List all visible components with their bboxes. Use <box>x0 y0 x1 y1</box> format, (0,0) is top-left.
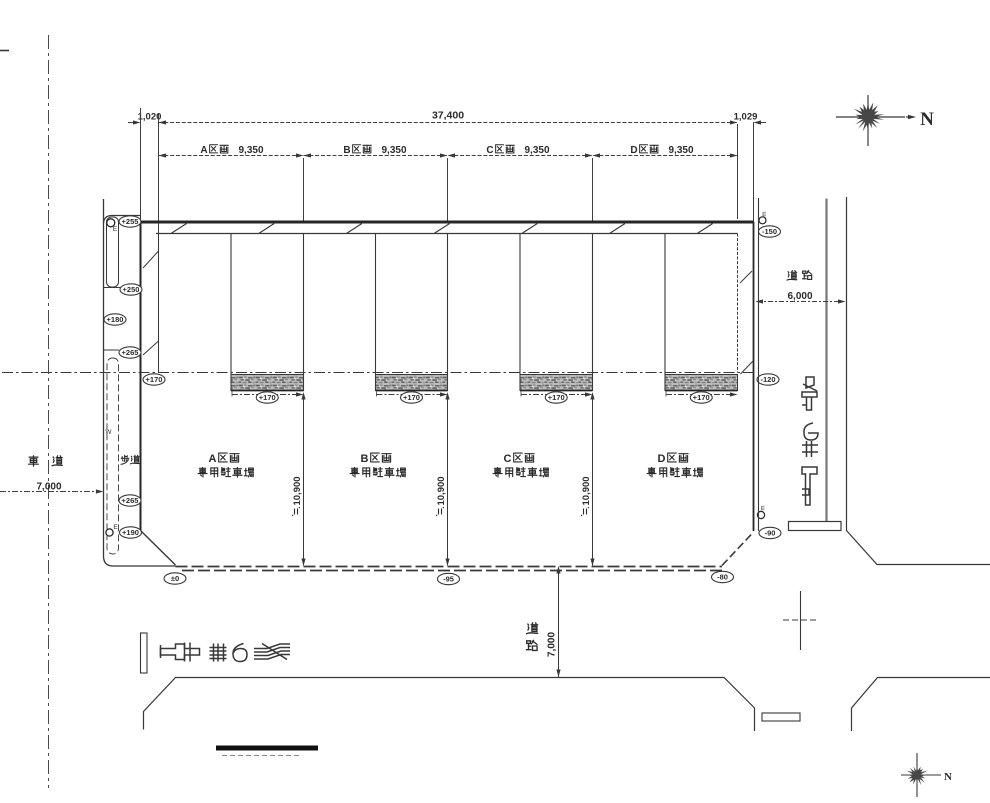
svg-text:+170: +170 <box>403 393 420 402</box>
svg-text:+255: +255 <box>122 217 139 226</box>
svg-text:-150: -150 <box>762 227 777 236</box>
svg-text:+265: +265 <box>122 348 139 357</box>
svg-text:C: C <box>504 453 512 465</box>
svg-text:10,900: 10,900 <box>292 476 303 505</box>
svg-text:9,350: 9,350 <box>381 145 406 156</box>
svg-text:1,029: 1,029 <box>734 112 758 123</box>
svg-text:+170: +170 <box>548 393 565 402</box>
svg-text:9,350: 9,350 <box>524 145 549 156</box>
svg-text:+180: +180 <box>107 315 124 324</box>
svg-text:7,000: 7,000 <box>36 482 61 493</box>
svg-text:m: m <box>761 506 767 511</box>
svg-text:+250: +250 <box>123 285 140 294</box>
svg-text:±0: ±0 <box>171 574 179 583</box>
svg-text:B: B <box>361 453 369 465</box>
svg-text:N: N <box>944 771 952 783</box>
svg-text:10,900: 10,900 <box>436 476 447 505</box>
svg-text:37,400: 37,400 <box>432 110 464 122</box>
svg-text:E: E <box>113 524 118 531</box>
svg-text:10,900: 10,900 <box>581 476 592 505</box>
svg-text:+170: +170 <box>146 375 163 384</box>
svg-text:D: D <box>658 453 666 465</box>
svg-text:+170: +170 <box>259 393 276 402</box>
svg-text:+170: +170 <box>693 393 710 402</box>
svg-text:C: C <box>486 145 493 156</box>
svg-text:+190: +190 <box>122 528 139 537</box>
svg-text:-80: -80 <box>717 573 728 582</box>
svg-text:9,350: 9,350 <box>668 145 693 156</box>
svg-text:-120: -120 <box>760 375 775 384</box>
svg-text:A: A <box>200 145 207 156</box>
svg-text:D: D <box>630 145 637 156</box>
svg-text:-95: -95 <box>443 575 454 584</box>
svg-text:E: E <box>113 226 118 233</box>
svg-text:-90: -90 <box>765 529 776 538</box>
svg-text:B: B <box>343 145 350 156</box>
svg-text:m: m <box>762 212 768 217</box>
svg-text:1,020: 1,020 <box>138 112 162 123</box>
svg-text:+265: +265 <box>122 496 139 505</box>
svg-text:9,350: 9,350 <box>238 145 263 156</box>
svg-text:N: N <box>920 109 934 130</box>
svg-text:7,000: 7,000 <box>547 632 558 657</box>
svg-text:W: W <box>105 429 112 436</box>
svg-text:6,000: 6,000 <box>787 291 812 302</box>
svg-text:A: A <box>209 453 217 465</box>
